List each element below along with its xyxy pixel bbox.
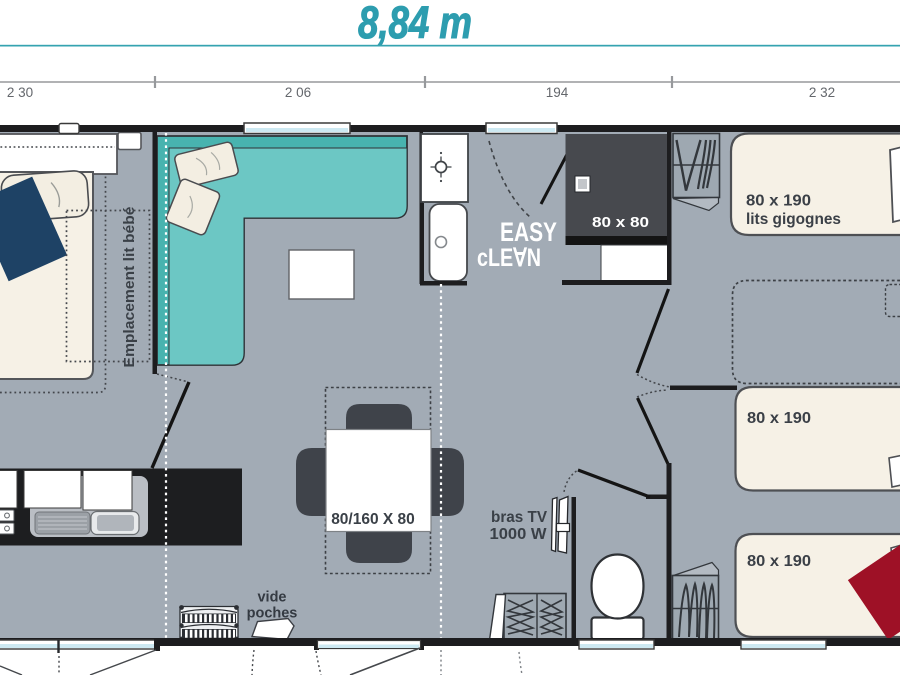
- svg-text:2 32: 2 32: [809, 85, 835, 100]
- svg-text:lits gigognes: lits gigognes: [746, 211, 841, 228]
- svg-text:80 x 190: 80 x 190: [746, 193, 811, 210]
- svg-text:2 06: 2 06: [285, 85, 311, 100]
- svg-text:poches: poches: [247, 606, 298, 622]
- svg-text:bras TV: bras TV: [491, 509, 547, 526]
- svg-text:1000 W: 1000 W: [490, 526, 548, 543]
- svg-text:80/160 X 80: 80/160 X 80: [331, 511, 415, 528]
- svg-text:EASY: EASY: [500, 217, 557, 247]
- svg-text:Emplacement lit bébé: Emplacement lit bébé: [121, 207, 138, 368]
- svg-text:80 x 190: 80 x 190: [747, 410, 811, 427]
- svg-text:80 x 190: 80 x 190: [747, 553, 811, 570]
- svg-text:cLE∀N: cLE∀N: [477, 244, 541, 272]
- svg-text:80 x 80: 80 x 80: [592, 214, 649, 231]
- svg-text:194: 194: [546, 85, 569, 100]
- svg-text:2 30: 2 30: [7, 85, 33, 100]
- svg-text:vide: vide: [257, 590, 286, 606]
- svg-text:8,84 m: 8,84 m: [358, 0, 472, 48]
